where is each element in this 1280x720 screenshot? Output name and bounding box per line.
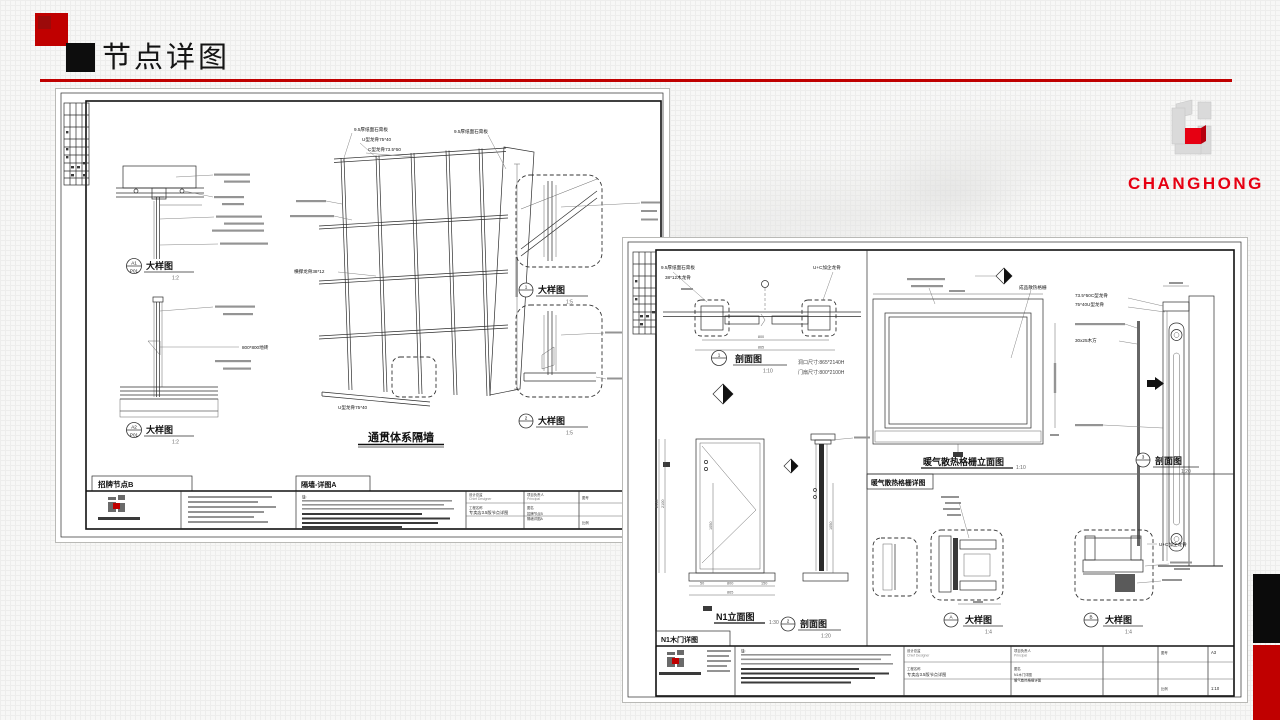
sheet1-tab-left: 招牌节点B [92, 476, 192, 491]
svg-text:图名: 图名 [1014, 666, 1021, 671]
sheet1-detail-a2-drawing [120, 297, 255, 417]
svg-text:P01: P01 [130, 433, 139, 438]
svg-text:B: B [1089, 615, 1092, 620]
sheet1-ann-u-runner: U型龙骨75*40 [362, 136, 392, 143]
sheet2-door-section-drawing [784, 434, 870, 581]
svg-text:Chief Designer: Chief Designer [907, 654, 930, 658]
svg-text:隔墙-详图A: 隔墙-详图A [301, 480, 336, 489]
svg-text:1050: 1050 [709, 522, 713, 530]
sheet2-tab-door: N1木门详图 [656, 631, 730, 646]
svg-text:图号: 图号 [1161, 650, 1168, 655]
svg-text:暖气散热格栅详图: 暖气散热格栅详图 [871, 478, 926, 487]
sheet1-ann-board-right: 9.5厚纸面石膏板 [454, 128, 488, 135]
svg-text:800: 800 [727, 582, 733, 586]
svg-text:Principal: Principal [1014, 654, 1027, 658]
sheet2-door-elevation-dims: 2140 2100 1050 50 800 150 865 [655, 500, 767, 595]
svg-text:图名: 图名 [527, 505, 534, 510]
svg-text:1:10: 1:10 [1211, 686, 1220, 691]
sheet2-sec2-label: 2 剖面图 1:20 [781, 617, 841, 640]
svg-text:50: 50 [700, 582, 704, 586]
svg-text:1:4: 1:4 [985, 630, 992, 636]
sheet2-grille-elevation-drawing [873, 268, 1059, 457]
sheet2-ann-uc-b: U+C加企龙骨 [1159, 541, 1187, 548]
svg-text:1:30: 1:30 [769, 620, 779, 626]
accent-red-square [35, 13, 68, 46]
svg-text:3: 3 [1142, 455, 1145, 460]
sheet2-head-dim-865: 865 [758, 346, 764, 350]
sheet1-axo-annotations: 9.5厚纸面石膏板 U型龙骨75*40 C型龙骨73.5*50 9.5厚纸面石膏… [294, 126, 488, 411]
sheet1-tab-right: 隔墙-详图A [296, 476, 370, 491]
svg-text:注:: 注: [741, 648, 746, 653]
sheet2-detail-a-label: A 大样图 1:4 [944, 613, 1003, 636]
svg-text:1:2: 1:2 [172, 276, 179, 282]
svg-text:设计总监: 设计总监 [907, 648, 921, 653]
svg-text:剖面图: 剖面图 [800, 618, 827, 629]
svg-text:150: 150 [761, 582, 767, 586]
svg-text:1:10: 1:10 [763, 369, 773, 375]
drawing-sheet-door-grille: 9.5厚纸面石膏板 38*12木龙骨 U+C加企龙骨 800 865 1 剖面图… [622, 237, 1248, 703]
svg-text:N1木门详图: N1木门详图 [661, 635, 698, 644]
sheet1-axo-framing-drawing [290, 133, 534, 406]
sheet2-ann-wood-stud: 38*12木龙骨 [665, 274, 691, 281]
changhong-logo-icon [1150, 92, 1240, 172]
sheet1-detail-a1-drawing [116, 166, 268, 259]
sheet2-ann-c-stud: 73.5*50C型龙骨 [1075, 292, 1108, 299]
sheet1-detail-a2-label: A2 P01 大样图 1:2 [127, 423, 195, 446]
svg-text:Principal: Principal [527, 497, 540, 501]
sheet1-outer-border [61, 93, 663, 537]
sheet1-ann-cross-stud: 横撑龙骨38*12 [294, 268, 325, 275]
sheet2-title-block: 注: 设计总监 Chief Designer 项目负责人 Principal 工… [656, 646, 1234, 696]
svg-text:暖气散热格栅详图: 暖气散热格栅详图 [1014, 678, 1042, 683]
sheet1-drawing: A1 P01 大样图 1:2 800*800地砖 A2 P01 大样图 1:2 [56, 89, 669, 542]
drawing-sheet-partition: A1 P01 大样图 1:2 800*800地砖 A2 P01 大样图 1:2 [55, 88, 670, 543]
sheet1-detail-2-label: 2 大样图 1:5 [519, 414, 588, 437]
svg-text:大样图: 大样图 [1105, 614, 1132, 625]
svg-text:N1立面图: N1立面图 [716, 611, 755, 622]
sheet2-grille-elevation-label: 暖气散热格栅立面图 1:10 [921, 456, 1026, 471]
svg-text:A2: A2 [131, 425, 137, 430]
svg-text:A1: A1 [131, 261, 137, 266]
sheet2-head-dim-800: 800 [758, 335, 764, 339]
sheet2-radiator-annotations: 73.5*50C型龙骨 75*40U型龙骨 30x25木方 [1075, 292, 1108, 344]
sheet2-opening-size: 洞口尺寸:865*2140H [798, 359, 845, 366]
svg-text:大样图: 大样图 [538, 415, 565, 426]
sheet2-outer-border [628, 242, 1241, 697]
svg-text:1:20: 1:20 [821, 634, 831, 640]
accent-black-square [66, 43, 95, 72]
svg-text:图号: 图号 [582, 495, 589, 500]
svg-text:1:20: 1:20 [1181, 469, 1191, 475]
svg-text:工程名称: 工程名称 [907, 666, 921, 671]
sheet2-ann-louver: 成品散热格栅 [1019, 284, 1047, 291]
sheet1-detail-2-drawing [516, 305, 623, 397]
svg-text:剖面图: 剖面图 [1155, 455, 1182, 466]
svg-text:1:2: 1:2 [172, 440, 179, 446]
svg-text:比例: 比例 [1161, 686, 1168, 691]
edge-bar-red [1253, 645, 1280, 720]
sheet2-margin-table [633, 252, 656, 334]
svg-text:项目负责人: 项目负责人 [1014, 648, 1032, 653]
page-title: 节点详图 [102, 34, 230, 76]
accent-red-inner-square [38, 16, 51, 29]
svg-text:N1木门详图: N1木门详图 [1014, 672, 1033, 677]
sheet1-ann-board-top: 9.5厚纸面石膏板 [354, 126, 388, 133]
svg-text:1: 1 [525, 285, 528, 290]
sheet1-detail-1-label: 1 大样图 1:5 [519, 283, 588, 306]
sheet2-drawing: 9.5厚纸面石膏板 38*12木龙骨 U+C加企龙骨 800 865 1 剖面图… [623, 238, 1247, 702]
svg-text:专卖店3.5版节点详图: 专卖店3.5版节点详图 [469, 509, 508, 516]
sheet2-tab-grille: 暖气散热格栅详图 [867, 474, 933, 489]
sheet2-sec1-label: 1 剖面图 1:10 [712, 351, 788, 375]
sheet2-ann-uc-top: U+C加企龙骨 [813, 264, 841, 271]
title-underline [40, 79, 1232, 82]
sheet2-ann-u-runner: 75*40U型龙骨 [1075, 301, 1105, 308]
sheet1-ann-tile: 800*800地砖 [242, 344, 269, 351]
sheet2-orientation-marker [713, 384, 733, 404]
sheet2-door-elevation-drawing [659, 439, 775, 595]
sheet1-title-block: 注: 设计总监 Chief Designer 项目负责人 Principal 工… [86, 491, 661, 529]
sheet2-sec3-label: 3 剖面图 1:20 [1136, 453, 1199, 475]
svg-text:暖气散热格栅立面图: 暖气散热格栅立面图 [923, 456, 1004, 467]
sheet2-ann-board: 9.5厚纸面石膏板 [661, 264, 695, 271]
sheet2-ann-wood-block: 30x25木方 [1075, 337, 1097, 344]
sheet2-detail-a-drawing [873, 496, 1003, 604]
svg-text:专卖店3.5版节点详图: 专卖店3.5版节点详图 [907, 671, 946, 678]
svg-text:2140: 2140 [655, 500, 659, 508]
svg-text:865: 865 [727, 591, 733, 595]
sheet1-detail-a1-label: A1 P01 大样图 1:2 [127, 259, 195, 282]
svg-text:剖面图: 剖面图 [735, 353, 762, 364]
svg-text:大样图: 大样图 [146, 424, 173, 435]
edge-bar-black [1253, 574, 1280, 643]
svg-text:P01: P01 [130, 269, 139, 274]
slide: { "slide": { "title": "节点详图" }, "brand":… [0, 0, 1280, 720]
sheet2-leaf-size: 门扇尺寸:800*2100H [798, 369, 845, 376]
svg-text:招牌节点B: 招牌节点B [527, 511, 544, 516]
svg-text:招牌节点B: 招牌节点B [98, 479, 134, 489]
sheet2-section-dim-1050: 1050 [829, 522, 833, 530]
svg-text:大样图: 大样图 [538, 284, 565, 295]
svg-text:注:: 注: [302, 494, 307, 499]
svg-text:1: 1 [718, 353, 721, 358]
svg-text:隔墙详图A: 隔墙详图A [527, 516, 544, 521]
svg-text:2100: 2100 [661, 500, 665, 508]
svg-text:通贯体系隔墙: 通贯体系隔墙 [368, 430, 434, 444]
sheet1-ann-c-stud: C型龙骨73.5*50 [368, 146, 401, 153]
sheet2-detail-b-label: B 大样图 1:4 [1084, 613, 1143, 636]
world-map-watermark-2 [840, 130, 1060, 250]
sheet1-ann-u-bottom: U型龙骨75*40 [338, 404, 368, 411]
svg-text:1:4: 1:4 [1125, 630, 1132, 636]
sheet2-door-elevation-label: N1立面图 1:30 [703, 606, 779, 626]
svg-text:Chief Designer: Chief Designer [469, 497, 492, 501]
svg-text:比例: 比例 [582, 520, 589, 525]
svg-text:大样图: 大样图 [965, 614, 992, 625]
svg-text:2: 2 [525, 416, 528, 421]
svg-text:2: 2 [787, 619, 790, 624]
sheet1-main-title: 通贯体系隔墙 [358, 430, 444, 447]
changhong-wordmark: CHANGHONG [1128, 174, 1258, 194]
sheet2-radiator-section-drawing [1075, 282, 1223, 566]
svg-text:1:5: 1:5 [566, 431, 573, 437]
sheet1-inner-border [86, 101, 661, 529]
svg-text:1:10: 1:10 [1016, 465, 1026, 471]
svg-text:大样图: 大样图 [146, 260, 173, 271]
svg-text:A3: A3 [1211, 650, 1217, 655]
